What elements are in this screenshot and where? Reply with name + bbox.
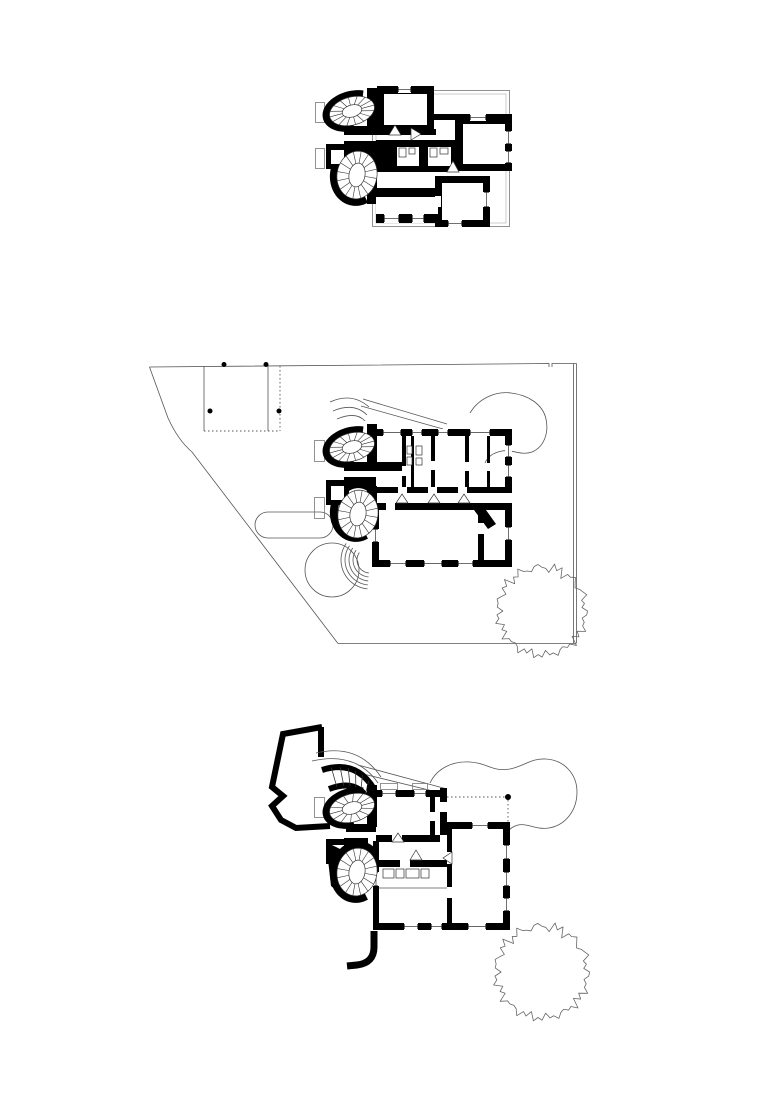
room-cutout	[331, 486, 344, 500]
room-cutout	[487, 463, 490, 471]
outline-rect	[315, 498, 325, 519]
room-cutout	[386, 503, 395, 510]
wall-rect	[478, 510, 484, 567]
room-cutout	[435, 196, 441, 207]
fixture	[440, 148, 448, 154]
room-cutout	[434, 120, 455, 129]
fixture	[409, 148, 415, 154]
room-cutout	[398, 487, 407, 493]
fixture	[396, 869, 404, 878]
outline-rect	[316, 149, 325, 169]
thin-path	[347, 931, 374, 966]
main-floor-site-plan-drawing	[145, 352, 590, 662]
wall-rect	[376, 835, 440, 842]
fixture	[407, 446, 412, 454]
fixture	[407, 457, 412, 465]
column-dot	[222, 362, 227, 367]
ground-floor-plan-drawing	[258, 712, 598, 1022]
door-leaf	[396, 494, 408, 503]
wall-rect	[346, 824, 376, 832]
main-floor-site-plan-figure	[145, 352, 590, 662]
wall-rect	[487, 436, 490, 487]
thin-path	[337, 415, 365, 421]
outline-rect	[381, 784, 398, 790]
stair-tread-line	[331, 768, 336, 787]
fixture	[383, 869, 394, 878]
fixture	[430, 148, 437, 157]
fixture	[421, 869, 429, 878]
wall-rect	[465, 436, 469, 487]
thin-path	[150, 364, 577, 368]
wall-poly	[474, 510, 496, 529]
room-cutout	[431, 461, 435, 470]
wall-rect	[344, 462, 404, 471]
wall-rect	[376, 860, 447, 867]
thin-path	[430, 759, 577, 832]
upper-floor-plan-drawing	[313, 80, 518, 235]
room-cutout	[465, 462, 469, 471]
upper-floor-plan-figure	[313, 80, 518, 235]
column-dot	[208, 409, 213, 414]
fixture	[406, 869, 419, 878]
fixture	[399, 148, 406, 157]
room-cutout	[430, 812, 435, 821]
column-dot	[264, 362, 269, 367]
room-cutout	[478, 523, 484, 534]
door-leaf	[458, 494, 470, 503]
wall-rect	[447, 829, 452, 930]
drawing-sheet	[0, 0, 780, 1095]
wall-rect	[370, 790, 447, 797]
thin-line	[363, 399, 447, 424]
ground-floor-plan-figure	[258, 712, 598, 1022]
wall-rect	[376, 188, 438, 197]
thin-path	[150, 367, 339, 644]
wall-rect	[402, 436, 406, 487]
room-cutout	[440, 802, 447, 812]
wall-rect	[505, 429, 512, 493]
room-cutout	[458, 487, 467, 493]
room-cutout	[463, 124, 505, 164]
outline-rect	[255, 512, 333, 538]
fixture	[416, 458, 422, 465]
wall-rect	[376, 487, 512, 493]
garden-step-arc	[353, 550, 369, 577]
door-leaf	[428, 494, 440, 503]
room-cutout	[376, 197, 438, 214]
fixture	[416, 446, 422, 455]
room-cutout	[447, 887, 452, 898]
column-dot	[277, 409, 282, 414]
thin-path	[333, 407, 367, 415]
column-dot	[505, 794, 511, 800]
room-cutout	[428, 487, 437, 493]
door-leaf	[410, 850, 422, 860]
room-cutout	[442, 183, 483, 220]
tree-canopy	[494, 923, 590, 1021]
room-cutout	[384, 94, 427, 125]
room-cutout	[402, 466, 406, 476]
room-cutout	[400, 860, 410, 867]
